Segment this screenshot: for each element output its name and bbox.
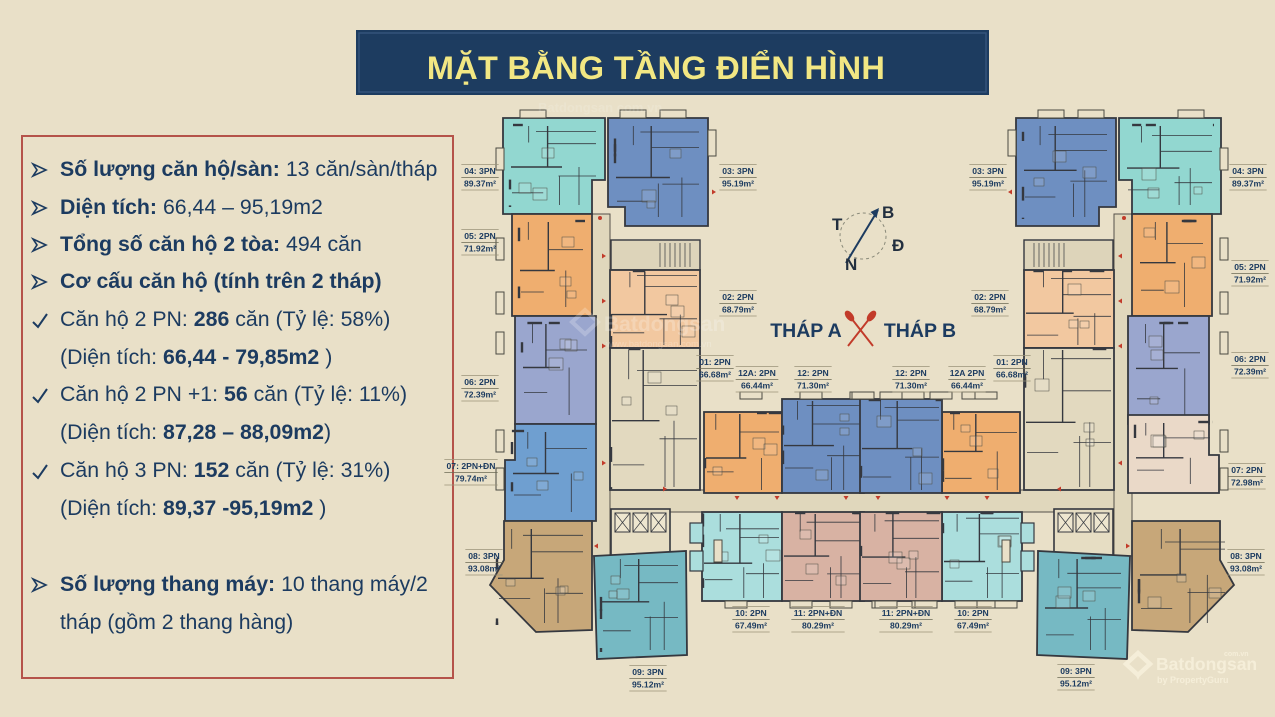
svg-text:66.68m²: 66.68m² — [996, 370, 1028, 380]
svg-text:04: 3PN: 04: 3PN — [464, 166, 496, 176]
svg-text:01: 2PN: 01: 2PN — [996, 357, 1028, 367]
svg-text:Diện tích: 66,44 – 95,19m2: Diện tích: 66,44 – 95,19m2 — [60, 195, 323, 219]
svg-text:02: 2PN: 02: 2PN — [722, 292, 754, 302]
svg-text:08: 3PN: 08: 3PN — [468, 551, 500, 561]
svg-text:12A 2PN: 12A 2PN — [950, 368, 985, 378]
svg-text:67.49m²: 67.49m² — [957, 621, 989, 631]
svg-text:93.08m²: 93.08m² — [1230, 564, 1262, 574]
svg-text:(Diện tích: 87,28 – 88,09m2): (Diện tích: 87,28 – 88,09m2) — [60, 420, 331, 444]
svg-text:95.19m²: 95.19m² — [722, 179, 754, 189]
svg-text:05: 2PN: 05: 2PN — [1234, 262, 1266, 272]
svg-text:11: 2PN+ĐN: 11: 2PN+ĐN — [794, 608, 842, 618]
svg-text:12: 2PN: 12: 2PN — [797, 368, 829, 378]
svg-text:Căn hộ 2 PN +1: 56 căn (Tỷ lệ:: Căn hộ 2 PN +1: 56 căn (Tỷ lệ: 11%) — [60, 382, 407, 406]
svg-text:N: N — [845, 255, 857, 274]
svg-text:71.92m²: 71.92m² — [1234, 275, 1266, 285]
svg-text:68.79m²: 68.79m² — [722, 305, 754, 315]
svg-text:12A: 2PN: 12A: 2PN — [738, 368, 776, 378]
svg-text:95.12m²: 95.12m² — [1060, 679, 1092, 689]
svg-text:06: 2PN: 06: 2PN — [464, 377, 496, 387]
svg-text:71.30m²: 71.30m² — [895, 381, 927, 391]
svg-text:09: 3PN: 09: 3PN — [1060, 666, 1092, 676]
svg-text:04: 3PN: 04: 3PN — [1232, 166, 1264, 176]
svg-text:80.29m²: 80.29m² — [890, 621, 922, 631]
svg-text:07: 2PN: 07: 2PN — [1231, 465, 1263, 475]
svg-text:80.29m²: 80.29m² — [802, 621, 834, 631]
svg-text:95.19m²: 95.19m² — [972, 179, 1004, 189]
svg-text:Đ: Đ — [892, 236, 904, 255]
svg-text:Căn hộ 2 PN: 286 căn (Tỷ lệ: 5: Căn hộ 2 PN: 286 căn (Tỷ lệ: 58%) — [60, 307, 390, 331]
svg-text:(Diện tích: 66,44 - 79,85m2 ): (Diện tích: 66,44 - 79,85m2 ) — [60, 345, 332, 369]
svg-text:67.49m²: 67.49m² — [735, 621, 767, 631]
svg-text:tháp (gồm 2 thang hàng): tháp (gồm 2 thang hàng) — [60, 610, 293, 634]
svg-text:MẶT BẰNG TẦNG ĐIỂN HÌNH: MẶT BẰNG TẦNG ĐIỂN HÌNH — [427, 49, 885, 86]
svg-text:07: 2PN+ĐN: 07: 2PN+ĐN — [447, 461, 496, 471]
svg-text:71.92m²: 71.92m² — [464, 244, 496, 254]
svg-text:(Diện tích: 89,37 -95,19m2 ): (Diện tích: 89,37 -95,19m2 ) — [60, 496, 326, 520]
svg-text:THÁP B: THÁP B — [884, 319, 956, 342]
svg-text:08: 3PN: 08: 3PN — [1230, 551, 1262, 561]
svg-text:Số lượng căn hộ/sàn: 13 căn/sà: Số lượng căn hộ/sàn: 13 căn/sàn/tháp — [60, 157, 437, 181]
svg-text:66.68m²: 66.68m² — [699, 370, 731, 380]
svg-text:06: 2PN: 06: 2PN — [1234, 354, 1266, 364]
svg-text:10: 2PN: 10: 2PN — [957, 608, 989, 618]
svg-text:93.08m²: 93.08m² — [468, 564, 500, 574]
svg-text:72.39m²: 72.39m² — [1234, 367, 1266, 377]
svg-text:72.98m²: 72.98m² — [1231, 478, 1263, 488]
svg-text:10: 2PN: 10: 2PN — [735, 608, 767, 618]
svg-text:Số lượng thang máy: 10 thang m: Số lượng thang máy: 10 thang máy/2 — [60, 572, 428, 596]
svg-text:com.vn: com.vn — [1224, 651, 1249, 658]
svg-text:Cơ cấu căn hộ (tính trên 2 thá: Cơ cấu căn hộ (tính trên 2 tháp) — [60, 269, 382, 293]
svg-text:02: 2PN: 02: 2PN — [974, 292, 1006, 302]
svg-text:Batdongsan com.vn: Batdongsan com.vn — [538, 100, 662, 115]
svg-text:72.39m²: 72.39m² — [464, 390, 496, 400]
svg-text:Batdongsan: Batdongsan — [604, 313, 725, 336]
svg-text:11: 2PN+ĐN: 11: 2PN+ĐN — [882, 608, 930, 618]
svg-text:Tổng số căn hộ 2 tòa: 494 căn: Tổng số căn hộ 2 tòa: 494 căn — [60, 232, 362, 256]
svg-text:09: 3PN: 09: 3PN — [632, 667, 664, 677]
svg-text:www.batdongsan.com.vn: www.batdongsan.com.vn — [605, 339, 712, 350]
svg-text:by PropertyGuru: by PropertyGuru — [1157, 675, 1229, 685]
svg-text:03: 3PN: 03: 3PN — [722, 166, 754, 176]
svg-text:95.12m²: 95.12m² — [632, 680, 664, 690]
svg-text:03: 3PN: 03: 3PN — [972, 166, 1004, 176]
svg-text:89.37m²: 89.37m² — [1232, 179, 1264, 189]
svg-text:Căn hộ 3 PN: 152 căn (Tỷ lệ: 3: Căn hộ 3 PN: 152 căn (Tỷ lệ: 31%) — [60, 458, 390, 482]
svg-text:66.44m²: 66.44m² — [951, 381, 983, 391]
svg-text:T: T — [832, 215, 843, 234]
svg-text:05: 2PN: 05: 2PN — [464, 231, 496, 241]
svg-text:THÁP A: THÁP A — [770, 319, 842, 342]
svg-text:66.44m²: 66.44m² — [741, 381, 773, 391]
svg-text:68.79m²: 68.79m² — [974, 305, 1006, 315]
svg-text:01: 2PN: 01: 2PN — [699, 357, 731, 367]
svg-text:89.37m²: 89.37m² — [464, 179, 496, 189]
svg-text:71.30m²: 71.30m² — [797, 381, 829, 391]
svg-text:12: 2PN: 12: 2PN — [895, 368, 927, 378]
svg-text:B: B — [882, 203, 894, 222]
svg-text:79.74m²: 79.74m² — [455, 474, 487, 484]
